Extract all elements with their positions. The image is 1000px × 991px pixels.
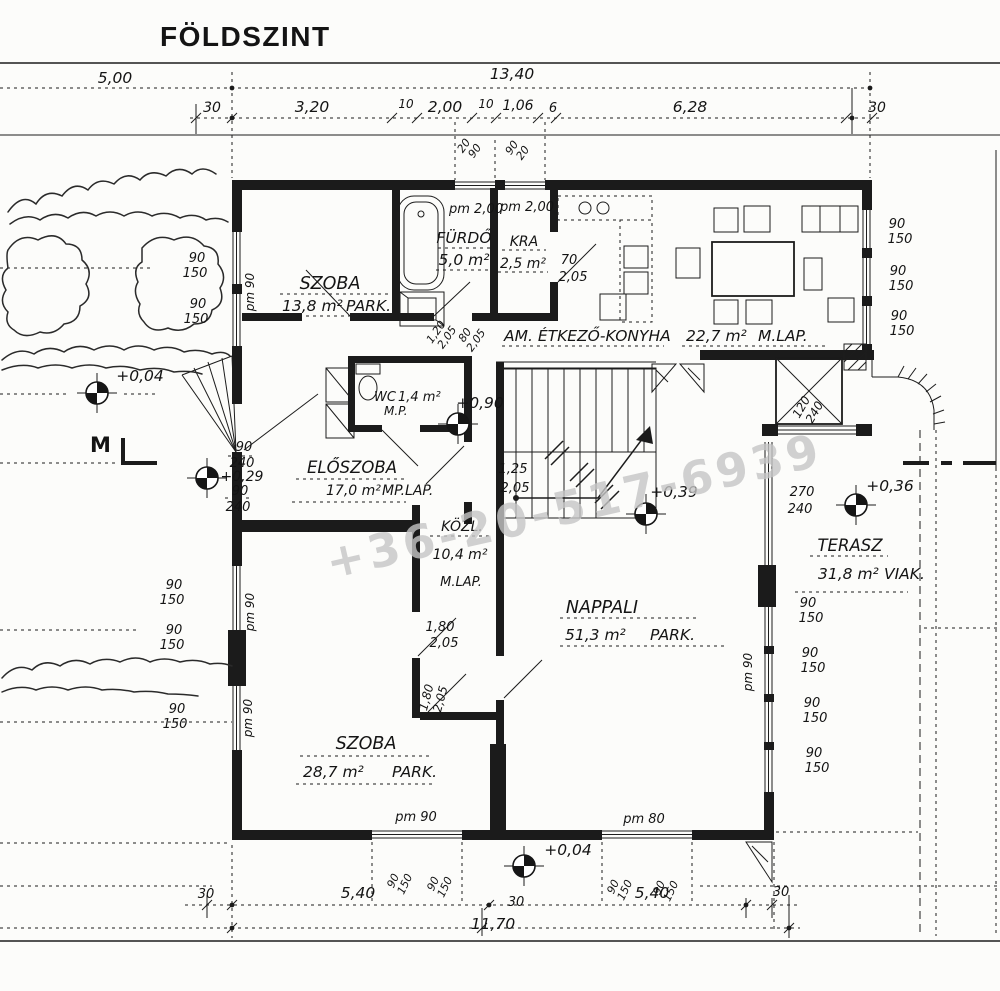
room-szoba2-name: SZOBA	[336, 734, 397, 754]
win-90150-s3w: 90	[169, 702, 186, 717]
dim-bot-30-right: 30	[773, 885, 790, 900]
win-90150-n3h: 150	[803, 711, 828, 726]
dim-top-13-40: 13,40	[490, 65, 535, 83]
win-90150-l2h: 150	[184, 312, 209, 327]
room-eloszoba-name: ELŐSZOBA	[307, 457, 397, 477]
elev-090-label: +0,90	[456, 394, 504, 412]
dim-top-10b: 10	[478, 97, 494, 111]
section-marker	[123, 438, 157, 463]
room-terasz-floor: VIAK.	[884, 565, 925, 583]
lintel-mark-a: 20 90	[455, 135, 485, 162]
win-90150-s2h: 150	[160, 638, 185, 653]
room-szoba2-floor: PARK.	[392, 763, 437, 781]
win-90150-b1: 90 150	[384, 867, 416, 897]
door-270-h: 240	[788, 502, 813, 517]
dim-bot-540-right: 5,40	[635, 884, 670, 902]
room-szoba2-area: 28,7 m²	[303, 763, 364, 781]
door-180-aw: 1,80	[426, 620, 455, 635]
room-szoba1-floor: PARK.	[346, 297, 391, 315]
dim-top-6: 6	[549, 101, 557, 116]
door-180-ah: 2,05	[430, 636, 459, 651]
scanned-floorplan-page: FÖLDSZINT 5,00 13,40 30 3,20 10 2,00 10 …	[0, 0, 1000, 991]
room-konyha-area: 22,7 m²	[686, 327, 747, 345]
dim-top-6-28: 6,28	[673, 98, 708, 116]
dim-top-1-06: 1,06	[502, 98, 533, 114]
win-90150-k2h: 150	[889, 279, 914, 294]
door-80-mark: 80 2,05	[454, 320, 489, 354]
floorplan-canvas: FÖLDSZINT 5,00 13,40 30 3,20 10 2,00 10 …	[0, 0, 1000, 991]
dim-bot-540-left: 5,40	[341, 884, 376, 902]
win-90240-aw: 90	[236, 440, 253, 455]
page-title: FÖLDSZINT	[160, 21, 331, 52]
room-furdo-area: 5,0 m²	[439, 251, 490, 269]
vegetation	[2, 169, 232, 696]
win-90150-b3: 90 150	[604, 873, 636, 903]
door-180-b: 1,80 2,05	[416, 681, 450, 716]
win-90240-bw: 90	[232, 484, 249, 499]
win-90150-l1w: 90	[189, 251, 206, 266]
section-m-label: M	[90, 433, 111, 457]
win-90150-k2w: 90	[890, 264, 907, 279]
win-90150-k1h: 150	[888, 232, 913, 247]
door-125-w: 1,25	[499, 462, 528, 477]
room-eloszoba-area: 17,0 m²	[326, 483, 381, 499]
door-120-240-mark: 120 240	[790, 392, 827, 428]
door-270-w: 270	[790, 485, 815, 500]
win-90150-n3w: 90	[804, 696, 821, 711]
room-kozl-floor: M.LAP.	[440, 575, 482, 590]
room-nappali-floor: PARK.	[650, 626, 695, 644]
window-head-pm200-b: pm 2,00	[499, 200, 554, 215]
dim-top-10a: 10	[398, 97, 414, 111]
door-70-w: 70	[561, 253, 578, 268]
room-furdo-name: FÜRDŐ	[436, 227, 491, 247]
win-90150-n4h: 150	[805, 761, 830, 776]
win-90150-k3w: 90	[891, 309, 908, 324]
dim-top-30-right: 30	[868, 100, 886, 116]
dim-top-30-left: 30	[203, 100, 221, 116]
dim-top-3-20: 3,20	[295, 98, 330, 116]
win-90150-n1w: 90	[800, 596, 817, 611]
win-90240-bh: 240	[226, 500, 251, 515]
room-eloszoba-floor: MP.LAP.	[382, 483, 433, 499]
phone-watermark: +36-20-517-6939	[321, 423, 828, 590]
win-90150-l2w: 90	[190, 297, 207, 312]
win-90150-n2h: 150	[801, 661, 826, 676]
room-terasz-name: TERASZ	[817, 536, 883, 555]
door-70-h: 2,05	[559, 270, 588, 285]
dim-top-2-00: 2,00	[428, 98, 463, 116]
win-90150-n4w: 90	[806, 746, 823, 761]
win-pm90-szoba2b: pm 90	[241, 698, 255, 738]
elev-004-bottom-label: +0,04	[544, 841, 592, 859]
door-120-mark: 1,20 2,05	[424, 317, 460, 353]
win-90150-s1w: 90	[166, 578, 183, 593]
win-90150-s1h: 150	[160, 593, 185, 608]
elev-029-label: +0,29	[221, 469, 264, 485]
room-wc-floor: M.P.	[384, 404, 408, 418]
win-90150-n1h: 150	[799, 611, 824, 626]
win-90150-k3h: 150	[890, 324, 915, 339]
room-kra-area: 2,5 m²	[500, 256, 546, 272]
win-90150-s3h: 150	[163, 717, 188, 732]
room-konyha-floor: M.LAP.	[758, 327, 808, 345]
room-nappali-name: NAPPALI	[566, 598, 638, 618]
room-wc-area: 1,4 m²	[398, 390, 441, 405]
dim-bot-30-left: 30	[198, 887, 215, 902]
room-kra-name: KRA	[510, 234, 539, 250]
win-90150-k1w: 90	[889, 217, 906, 232]
win-90150-s2w: 90	[166, 623, 183, 638]
dimension-lines-top	[0, 72, 880, 180]
lintel-mark-b: 90 20	[503, 137, 533, 164]
room-nappali-area: 51,3 m²	[565, 626, 626, 644]
win-pm90-nappali: pm 90	[741, 652, 755, 692]
elev-036-label: +0,36	[866, 477, 914, 495]
room-szoba1-name: SZOBA	[300, 274, 361, 294]
win-90150-n2w: 90	[802, 646, 819, 661]
win-pm80-bottom: pm 80	[622, 812, 665, 827]
win-pm90-szoba2a: pm 90	[243, 592, 257, 632]
room-konyha-name: AM. ÉTKEZŐ-KONYHA	[503, 325, 671, 345]
window-head-pm200-a: pm 2,00	[448, 202, 503, 217]
elev-004-top-label: +0,04	[116, 367, 164, 385]
win-90150-b2: 90 150	[424, 870, 456, 900]
room-szoba1-area: 13,8 m²	[282, 297, 343, 315]
win-pm90-bottom: pm 90	[394, 810, 437, 825]
entrance-steps	[182, 356, 236, 452]
win-pm90-left-top: pm 90	[243, 272, 257, 312]
room-wc-name: WC	[374, 390, 397, 405]
room-terasz-area: 31,8 m²	[818, 565, 879, 583]
win-90150-l1h: 150	[183, 266, 208, 281]
dim-bot-30-mid: 30	[508, 895, 525, 910]
dim-bot-11-70: 11,70	[471, 915, 516, 933]
dim-top-5-00: 5,00	[98, 69, 133, 87]
